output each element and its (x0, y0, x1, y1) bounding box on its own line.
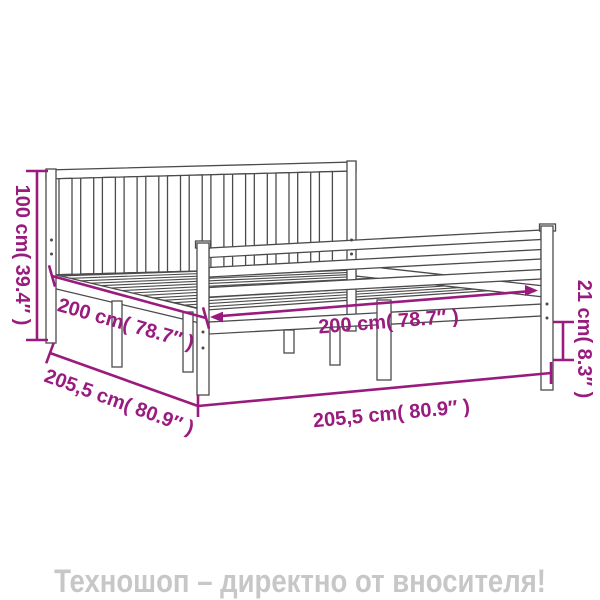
headboard-slats (59, 172, 332, 275)
dimension-rail-height: 21 cm( 8.3″ ) (553, 280, 595, 399)
dimension-headboard-height: 100 cm( 39.4″ ) (11, 171, 48, 340)
product-dimension-image: { "diagram": { "type": "bed-frame-with-h… (0, 0, 600, 600)
dimension-label-rail-height: 21 cm( 8.3″ ) (573, 280, 595, 399)
dimension-label-width-outer: 205,5 cm( 80.9″ ) (312, 396, 471, 433)
dimension-label-length-outer: 205,5 cm( 80.9″ ) (41, 365, 196, 440)
headboard-left-leg (46, 169, 56, 343)
dimension-width-outer: 205,5 cm( 80.9″ ) (198, 362, 551, 432)
watermark-text: Техношоп – директно от вносителя! (42, 563, 558, 600)
bed-frame-dimension-diagram: 100 cm( 39.4″ ) 200 cm( 78.7″ ) 200 cm( … (0, 0, 600, 600)
dimension-label-headboard-height: 100 cm( 39.4″ ) (11, 185, 33, 326)
